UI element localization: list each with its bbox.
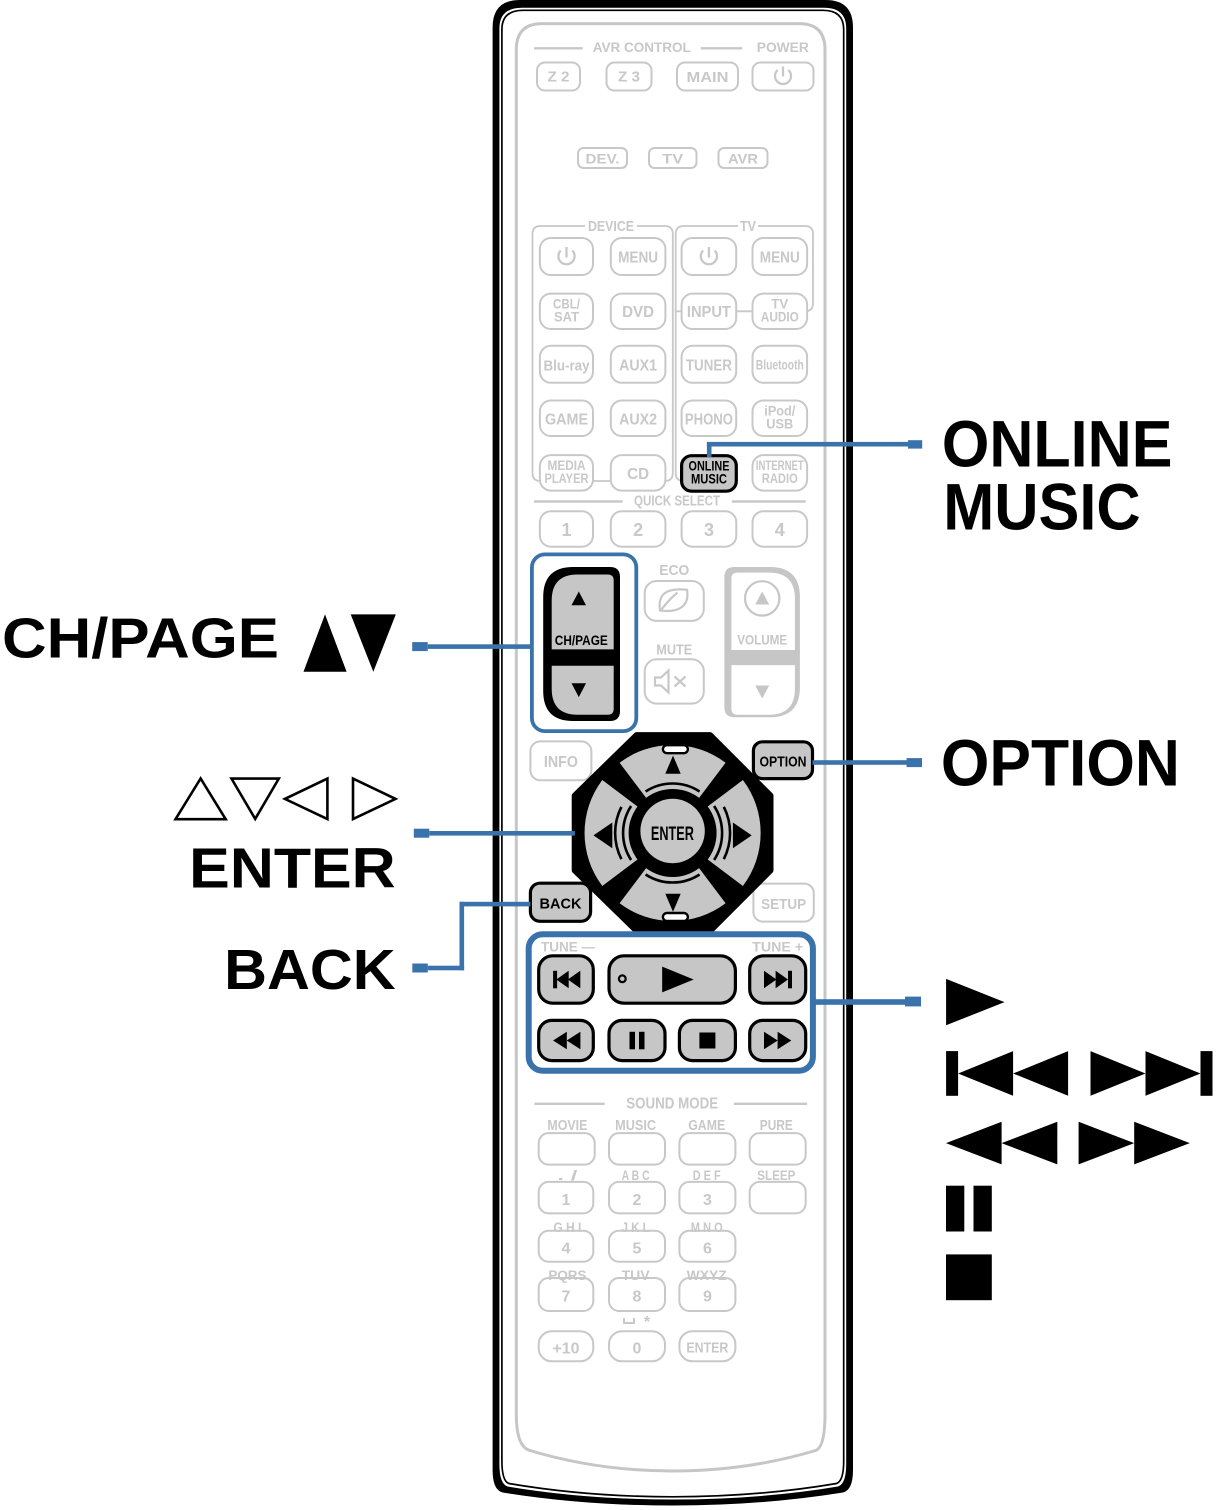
- svg-text:3: 3: [704, 520, 714, 540]
- svg-text:AVR CONTROL: AVR CONTROL: [593, 40, 691, 55]
- svg-text:4: 4: [775, 520, 785, 540]
- svg-text:ECO: ECO: [659, 563, 689, 579]
- svg-text:MUSIC: MUSIC: [691, 472, 727, 487]
- svg-text:OPTION: OPTION: [941, 725, 1180, 799]
- svg-text:ENTER: ENTER: [686, 1341, 728, 1357]
- svg-text:SOUND MODE: SOUND MODE: [626, 1096, 718, 1113]
- svg-text:AUX2: AUX2: [619, 412, 657, 429]
- svg-text:SLEEP: SLEEP: [757, 1168, 795, 1183]
- svg-text:DVD: DVD: [622, 304, 654, 321]
- svg-text:G H I: G H I: [553, 1220, 581, 1235]
- svg-text:INFO: INFO: [544, 754, 578, 771]
- svg-text:TUNER: TUNER: [686, 358, 732, 375]
- svg-text:VOLUME: VOLUME: [737, 632, 787, 648]
- svg-text:GAME: GAME: [545, 412, 588, 429]
- svg-text:*: *: [644, 1314, 651, 1331]
- svg-text:AVR: AVR: [728, 151, 758, 167]
- svg-text:TUNE +: TUNE +: [752, 939, 803, 955]
- svg-text:M N O: M N O: [691, 1220, 723, 1235]
- svg-text:DEV.: DEV.: [586, 151, 620, 167]
- svg-text:WXYZ: WXYZ: [687, 1268, 727, 1283]
- svg-text:ENTER: ENTER: [189, 837, 396, 901]
- svg-text:MENU: MENU: [760, 250, 800, 267]
- svg-text:8: 8: [633, 1289, 642, 1306]
- svg-text:TUNE —: TUNE —: [541, 939, 595, 955]
- svg-text:MUSIC: MUSIC: [615, 1118, 656, 1134]
- svg-text:POWER: POWER: [757, 40, 809, 55]
- svg-text:1: 1: [561, 520, 571, 540]
- svg-text:PQRS: PQRS: [548, 1268, 586, 1283]
- svg-text:2: 2: [633, 520, 643, 540]
- svg-text:QUICK SELECT: QUICK SELECT: [634, 494, 720, 510]
- svg-text:A B C: A B C: [622, 1168, 650, 1183]
- svg-text:ENTER: ENTER: [651, 823, 694, 845]
- svg-text:Bluetooth: Bluetooth: [756, 358, 804, 373]
- svg-text:PURE: PURE: [760, 1118, 793, 1134]
- svg-text:. /: . /: [557, 1168, 577, 1183]
- svg-text:SETUP: SETUP: [761, 896, 806, 913]
- svg-text:DEVICE: DEVICE: [588, 219, 634, 235]
- svg-text:RADIO: RADIO: [762, 471, 798, 486]
- svg-text:OPTION: OPTION: [760, 754, 807, 771]
- svg-text:3: 3: [703, 1192, 712, 1209]
- svg-text:MUSIC: MUSIC: [943, 470, 1140, 544]
- svg-text:BACK: BACK: [224, 938, 396, 1002]
- svg-text:5: 5: [633, 1241, 642, 1258]
- svg-text:7: 7: [562, 1289, 571, 1306]
- svg-text:D E F: D E F: [693, 1168, 721, 1183]
- svg-text:TUV: TUV: [622, 1268, 650, 1283]
- svg-text:9: 9: [703, 1289, 712, 1306]
- svg-text:SAT: SAT: [554, 310, 580, 325]
- svg-text:Z 3: Z 3: [618, 70, 640, 86]
- svg-text:0: 0: [633, 1341, 642, 1358]
- svg-text:MUTE: MUTE: [656, 643, 692, 659]
- svg-text:AUDIO: AUDIO: [761, 310, 799, 325]
- svg-text:CH/PAGE: CH/PAGE: [555, 632, 608, 648]
- svg-text:Z 2: Z 2: [548, 70, 570, 86]
- svg-text:1: 1: [562, 1192, 571, 1209]
- svg-text:+10: +10: [553, 1341, 580, 1358]
- svg-text:6: 6: [703, 1241, 712, 1258]
- svg-text:INPUT: INPUT: [687, 304, 731, 321]
- svg-text:CD: CD: [627, 466, 649, 483]
- svg-text:Blu-ray: Blu-ray: [544, 358, 591, 375]
- svg-text:AUX1: AUX1: [619, 358, 657, 375]
- svg-text:2: 2: [633, 1192, 642, 1209]
- svg-text:GAME: GAME: [688, 1118, 725, 1134]
- svg-text:TV: TV: [662, 151, 684, 167]
- svg-text:BACK: BACK: [540, 896, 582, 913]
- svg-text:CH/PAGE: CH/PAGE: [2, 606, 279, 670]
- svg-text:4: 4: [562, 1241, 571, 1258]
- svg-text:TV: TV: [740, 219, 756, 235]
- svg-text:MAIN: MAIN: [687, 69, 729, 86]
- svg-text:USB: USB: [766, 417, 793, 432]
- svg-text:PLAYER: PLAYER: [545, 471, 589, 486]
- svg-text:MOVIE: MOVIE: [547, 1118, 587, 1134]
- svg-text:J K L: J K L: [622, 1220, 650, 1235]
- svg-text:PHONO: PHONO: [685, 412, 733, 429]
- svg-text:MENU: MENU: [618, 250, 658, 267]
